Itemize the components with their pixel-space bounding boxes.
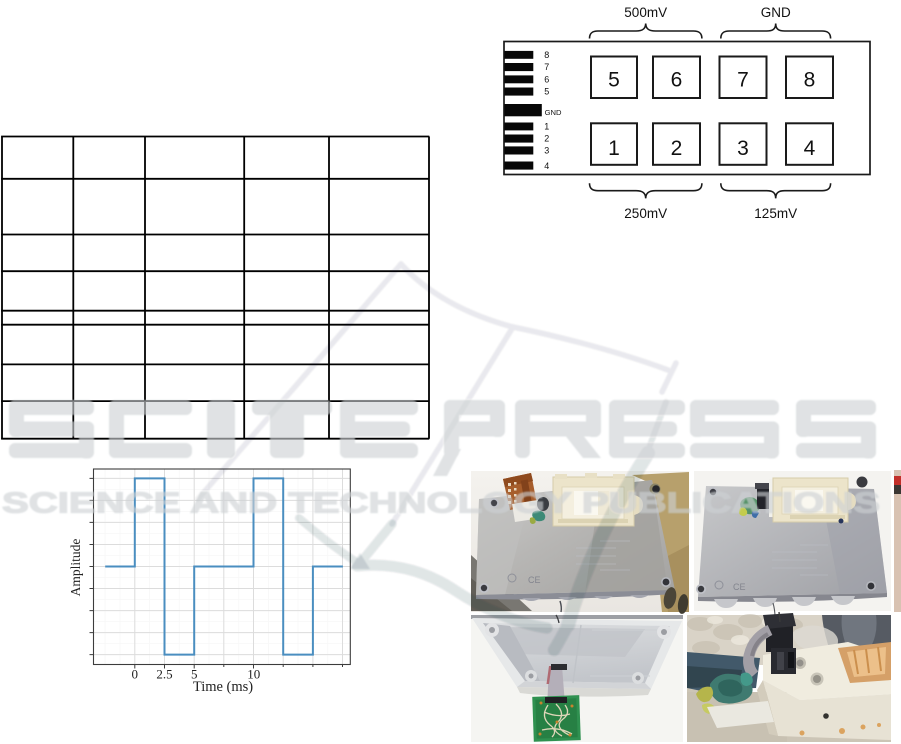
svg-text:500mV: 500mV <box>624 5 667 20</box>
svg-text:125mV: 125mV <box>754 206 797 221</box>
svg-text:8: 8 <box>544 50 549 60</box>
svg-text:1: 1 <box>544 122 549 132</box>
svg-text:CE: CE <box>733 582 746 592</box>
svg-text:5: 5 <box>608 69 620 92</box>
svg-text:SCIENCE AND TECHNOLOGY PUBLICA: SCIENCE AND TECHNOLOGY PUBLICATIONS <box>2 488 880 520</box>
svg-text:GND: GND <box>761 5 791 20</box>
svg-text:2: 2 <box>544 134 549 144</box>
svg-text:3: 3 <box>737 137 749 160</box>
svg-text:1: 1 <box>608 137 620 160</box>
svg-text:250mV: 250mV <box>624 206 667 221</box>
svg-text:7: 7 <box>544 62 549 72</box>
svg-text:5: 5 <box>544 87 549 97</box>
svg-text:6: 6 <box>544 75 549 85</box>
svg-text:4: 4 <box>804 137 816 160</box>
svg-text:GND: GND <box>545 108 562 117</box>
svg-text:3: 3 <box>544 146 549 156</box>
svg-text:0: 0 <box>132 667 139 682</box>
svg-text:Time (ms): Time (ms) <box>193 679 253 695</box>
svg-text:2.5: 2.5 <box>156 667 172 682</box>
svg-text:7: 7 <box>737 69 749 92</box>
svg-text:Amplitude: Amplitude <box>68 539 83 597</box>
svg-text:4: 4 <box>544 161 549 171</box>
svg-text:CE: CE <box>528 575 541 585</box>
svg-text:2: 2 <box>671 137 683 160</box>
svg-text:6: 6 <box>671 69 683 92</box>
svg-text:8: 8 <box>804 69 816 92</box>
